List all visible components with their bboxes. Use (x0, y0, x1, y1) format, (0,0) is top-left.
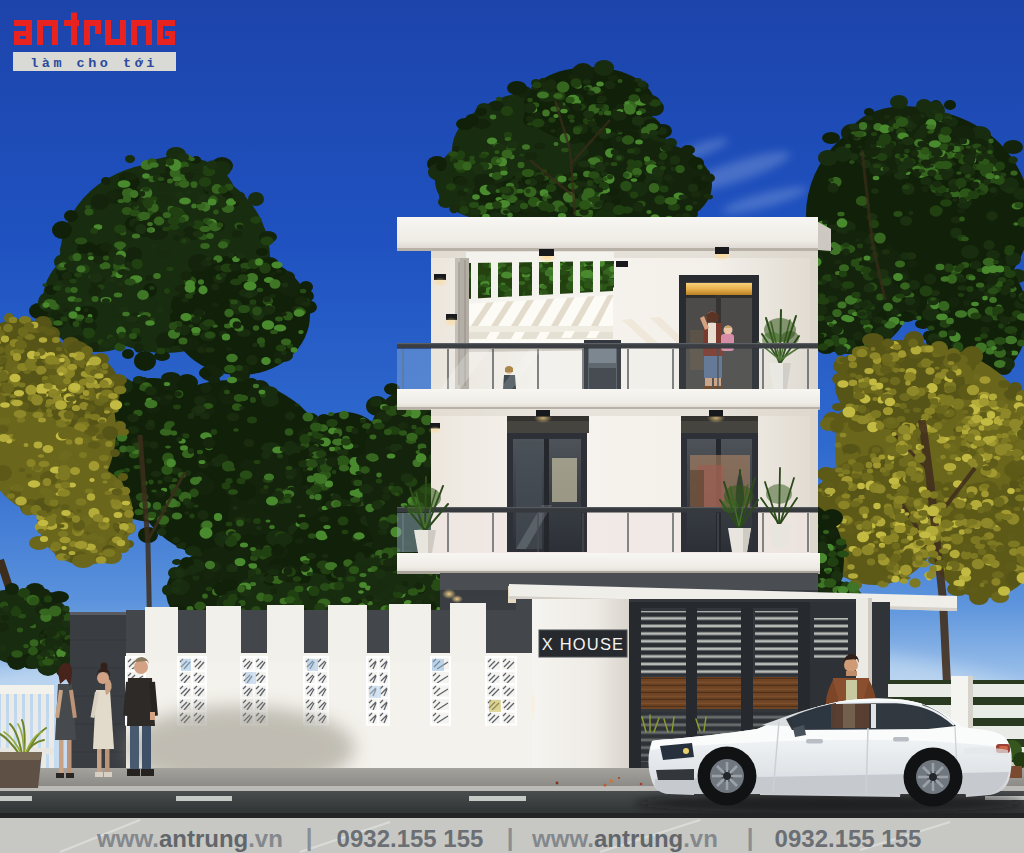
svg-text:|: | (747, 824, 754, 851)
svg-text:0932.155 155: 0932.155 155 (337, 825, 484, 852)
svg-text:làm cho tới: làm cho tới (30, 56, 158, 71)
svg-text:|: | (507, 824, 514, 851)
svg-text:X HOUSE: X HOUSE (542, 635, 625, 653)
svg-text:www.antrung.vn: www.antrung.vn (531, 825, 718, 852)
svg-text:www.antrung.vn: www.antrung.vn (96, 825, 283, 852)
svg-text:0932.155 155: 0932.155 155 (775, 825, 922, 852)
svg-text:|: | (306, 824, 313, 851)
